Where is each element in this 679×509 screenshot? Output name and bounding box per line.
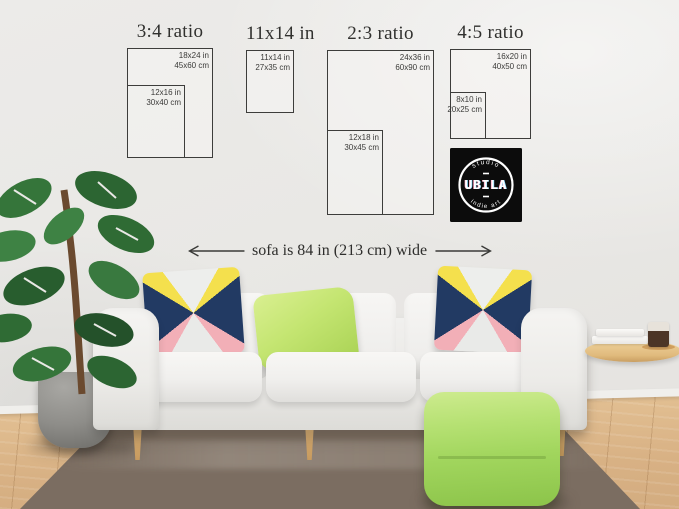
monstera-plant	[0, 168, 186, 403]
frame-size-label: 18x24 in 45x60 cm	[174, 51, 209, 71]
frame-size-label: 12x16 in 30x40 cm	[146, 88, 181, 108]
measure-arrow-right-icon	[434, 245, 492, 257]
diagram-title: 11x14 in	[246, 22, 294, 46]
sofa-seat-cushion	[266, 352, 416, 402]
book	[592, 336, 648, 344]
frame-outline-24x36: 24x36 in 60x90 cm 12x18 in 30x45 cm	[327, 50, 434, 215]
diagram-title: 4:5 ratio	[450, 21, 531, 45]
size-diagram-4-5-ratio: 4:5 ratio 16x20 in 40x50 cm 8x10 in 20x2…	[450, 21, 531, 139]
size-diagram-11x14: 11x14 in 11x14 in 27x35 cm	[246, 22, 294, 113]
frame-size-label: 8x10 in 20x25 cm	[447, 95, 482, 115]
frame-outline-16x20: 16x20 in 40x50 cm 8x10 in 20x25 cm	[450, 49, 531, 139]
frame-outline-8x10: 8x10 in 20x25 cm	[450, 92, 486, 139]
diagram-title: 3:4 ratio	[127, 20, 213, 44]
ubila-studio-logo: studio indie art UBILA UBILA UBILA	[450, 148, 522, 222]
frame-size-label: 16x20 in 40x50 cm	[492, 52, 527, 72]
frame-size-label: 12x18 in 30x45 cm	[344, 133, 379, 153]
sofa-width-label: sofa is 84 in (213 cm) wide	[252, 242, 427, 260]
size-diagram-3-4-ratio: 3:4 ratio 18x24 in 45x60 cm 12x16 in 30x…	[127, 20, 213, 158]
geometric-pillow-right	[434, 266, 532, 355]
frame-outline-11x14: 11x14 in 27x35 cm	[246, 50, 294, 113]
sofa-width-annotation: sofa is 84 in (213 cm) wide	[187, 242, 492, 260]
frame-size-label: 11x14 in 27x35 cm	[255, 53, 290, 73]
size-diagram-2-3-ratio: 2:3 ratio 24x36 in 60x90 cm 12x18 in 30x…	[327, 22, 434, 215]
logo-name: UBILA	[465, 177, 508, 192]
book	[596, 329, 644, 336]
frame-outline-12x16: 12x16 in 30x40 cm	[127, 85, 185, 158]
candle-jar	[648, 322, 669, 347]
measure-arrow-left-icon	[187, 245, 245, 257]
pouf-seam	[438, 456, 547, 459]
living-room-size-guide-image: 3:4 ratio 18x24 in 45x60 cm 12x16 in 30x…	[0, 0, 679, 509]
frame-size-label: 24x36 in 60x90 cm	[395, 53, 430, 73]
frame-outline-12x18: 12x18 in 30x45 cm	[327, 130, 383, 215]
frame-outline-18x24: 18x24 in 45x60 cm 12x16 in 30x40 cm	[127, 48, 213, 158]
green-pouf	[424, 392, 560, 506]
diagram-title: 2:3 ratio	[327, 22, 434, 46]
